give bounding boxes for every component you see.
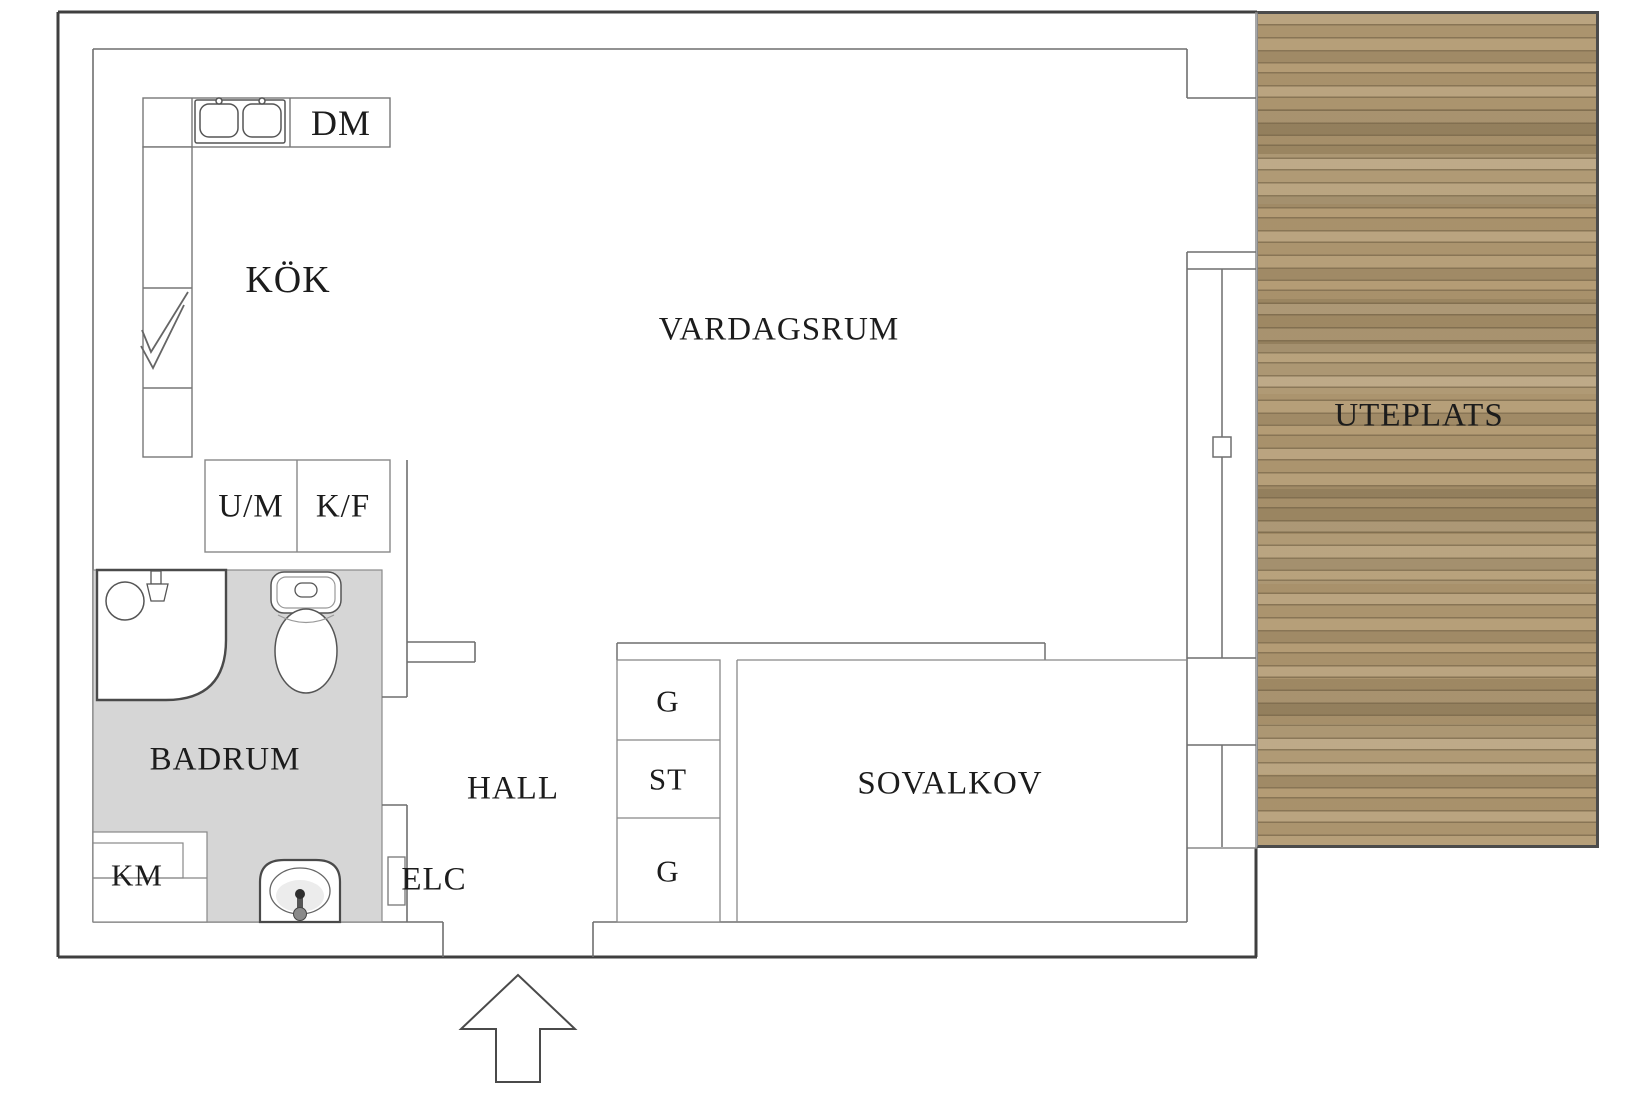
room-label-living-room: VARDAGSRUM xyxy=(659,314,899,347)
room-label-patio: UTEPLATS xyxy=(1334,400,1503,433)
label-wardrobe-bottom: G xyxy=(656,856,679,887)
partition-wall xyxy=(617,643,1045,660)
label-fridge-freezer: K/F xyxy=(316,491,370,524)
label-washer-dryer: U/M xyxy=(218,491,283,524)
room-label-kitchen: KÖK xyxy=(245,261,330,299)
basin-icon xyxy=(260,860,340,922)
room-label-sleeping-alcove: SOVALKOV xyxy=(857,768,1042,801)
floor-plan: KÖK VARDAGSRUM UTEPLATS BADRUM HALL SOVA… xyxy=(0,0,1650,1100)
room-label-hall: HALL xyxy=(467,773,559,806)
shower-icon xyxy=(97,570,226,700)
label-wardrobe-top: G xyxy=(656,686,679,717)
label-washing-machine: KM xyxy=(111,860,163,891)
bathroom-walls xyxy=(382,460,475,922)
kitchen-sink-icon xyxy=(195,98,285,143)
label-cleaning-closet: ST xyxy=(649,764,687,795)
window-handle-icon xyxy=(1213,437,1231,457)
entrance-arrow-icon xyxy=(461,975,575,1082)
room-label-bathroom: BADRUM xyxy=(150,744,301,777)
toilet-icon xyxy=(271,572,341,693)
floor-plan-drawing xyxy=(0,0,1650,1100)
label-electrical-cabinet: ELC xyxy=(401,864,466,897)
patio-window-wall xyxy=(1187,252,1256,847)
label-dishwasher: DM xyxy=(311,105,371,141)
